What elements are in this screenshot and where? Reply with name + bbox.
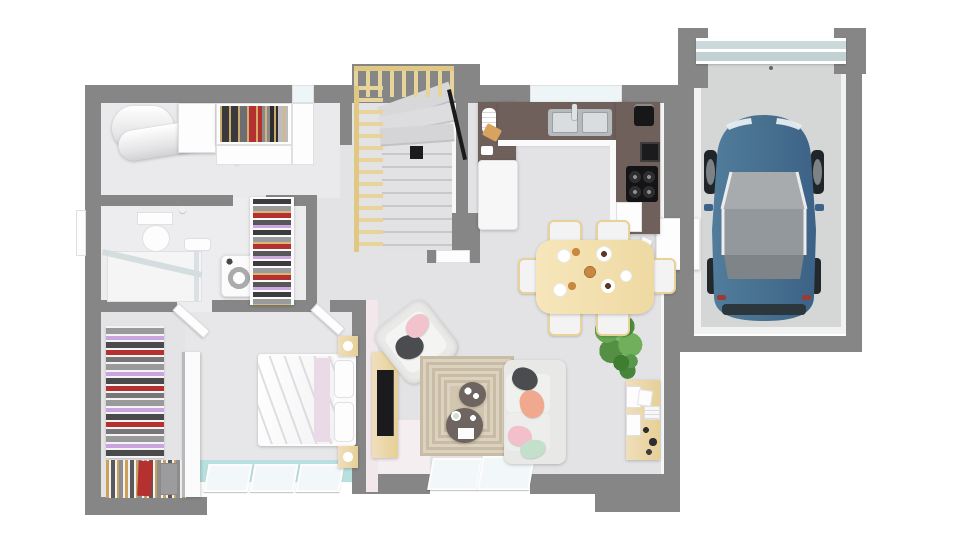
sofa <box>504 360 566 464</box>
coffee-machine <box>634 104 654 126</box>
sink-faucet <box>572 104 577 120</box>
nightstand-top <box>338 336 358 356</box>
bed-pink-throw <box>314 358 330 442</box>
car-mirror-left <box>704 204 713 211</box>
car-windshield <box>722 172 806 209</box>
hanging-clothes-top <box>220 106 288 142</box>
under-stairs-closet-door <box>436 250 470 263</box>
car-taillight-right <box>802 295 811 300</box>
garage-door <box>696 38 846 64</box>
laundry-cabinet-column <box>292 103 314 165</box>
fridge <box>478 160 518 230</box>
bed-pillow-b <box>334 402 354 442</box>
coffee-table-small <box>459 382 486 407</box>
built-in-oven <box>640 142 660 162</box>
dressing-gray-bag <box>160 463 178 495</box>
bathroom-ceiling-light <box>179 206 186 213</box>
coffee-table-large <box>446 408 483 443</box>
floor-plan-render <box>0 0 960 540</box>
cooktop <box>626 166 658 202</box>
shower-glass-panel-b <box>194 251 199 301</box>
top-wall-right-b <box>622 85 680 103</box>
bed-pillow-a <box>334 360 354 398</box>
laundry-wardrobe-base <box>216 145 292 165</box>
car-rear-bumper <box>722 304 806 315</box>
garage-wall-bottom <box>680 336 862 352</box>
stairs-newel-post <box>410 146 423 159</box>
dressing-partition <box>182 352 200 497</box>
bedroom-window-pane-1 <box>204 464 253 492</box>
garage-door-handle <box>769 66 773 70</box>
sliding-door-pane-1 <box>427 458 483 490</box>
kitchen-window <box>530 85 622 103</box>
toilet-bowl <box>142 225 170 252</box>
car-roof <box>722 209 806 255</box>
stairs-railing-left <box>354 86 383 252</box>
laundry-cabinet <box>178 103 216 153</box>
toilet-tank <box>137 212 173 225</box>
car <box>702 112 826 324</box>
dressing-shelves-folded-clothes <box>106 326 164 458</box>
kitchen-cabinet-face-top <box>498 140 616 146</box>
plant-small <box>610 350 642 382</box>
top-wall-right-a <box>480 85 530 103</box>
laundry-window <box>292 85 314 103</box>
bathroom-side-window <box>76 210 86 256</box>
bedroom-window-pane-2 <box>250 464 299 492</box>
closet-wall-right <box>306 195 317 312</box>
dining-table-setting <box>546 246 644 308</box>
car-mirror-right <box>815 204 824 211</box>
desk-drawer-b <box>626 414 641 436</box>
bottom-wall-right-a <box>530 474 680 494</box>
bedroom-window-pane-3 <box>296 464 345 492</box>
car-rear-window <box>724 255 804 279</box>
stairs-left-wall-stub <box>340 85 352 145</box>
bottom-wall-right-b <box>595 494 680 512</box>
linen-closet-clothes <box>250 197 294 305</box>
desk-books <box>644 406 660 420</box>
garage-wall-right <box>846 30 862 352</box>
bottom-wall-dressing <box>85 497 207 515</box>
top-wall-left <box>85 85 292 103</box>
sink-basin-right <box>582 112 608 133</box>
right-wall-lower <box>664 268 680 497</box>
tv <box>377 370 393 436</box>
dressing-red-garment <box>137 461 153 497</box>
kitchen-towel <box>481 146 493 155</box>
car-taillight-left <box>717 295 726 300</box>
nightstand-bottom <box>338 446 358 468</box>
garage-wall-left <box>680 30 694 352</box>
wall-hung-sink <box>184 238 211 251</box>
laundry-bath-wall-a <box>101 195 233 206</box>
desk-clutter <box>640 392 658 458</box>
